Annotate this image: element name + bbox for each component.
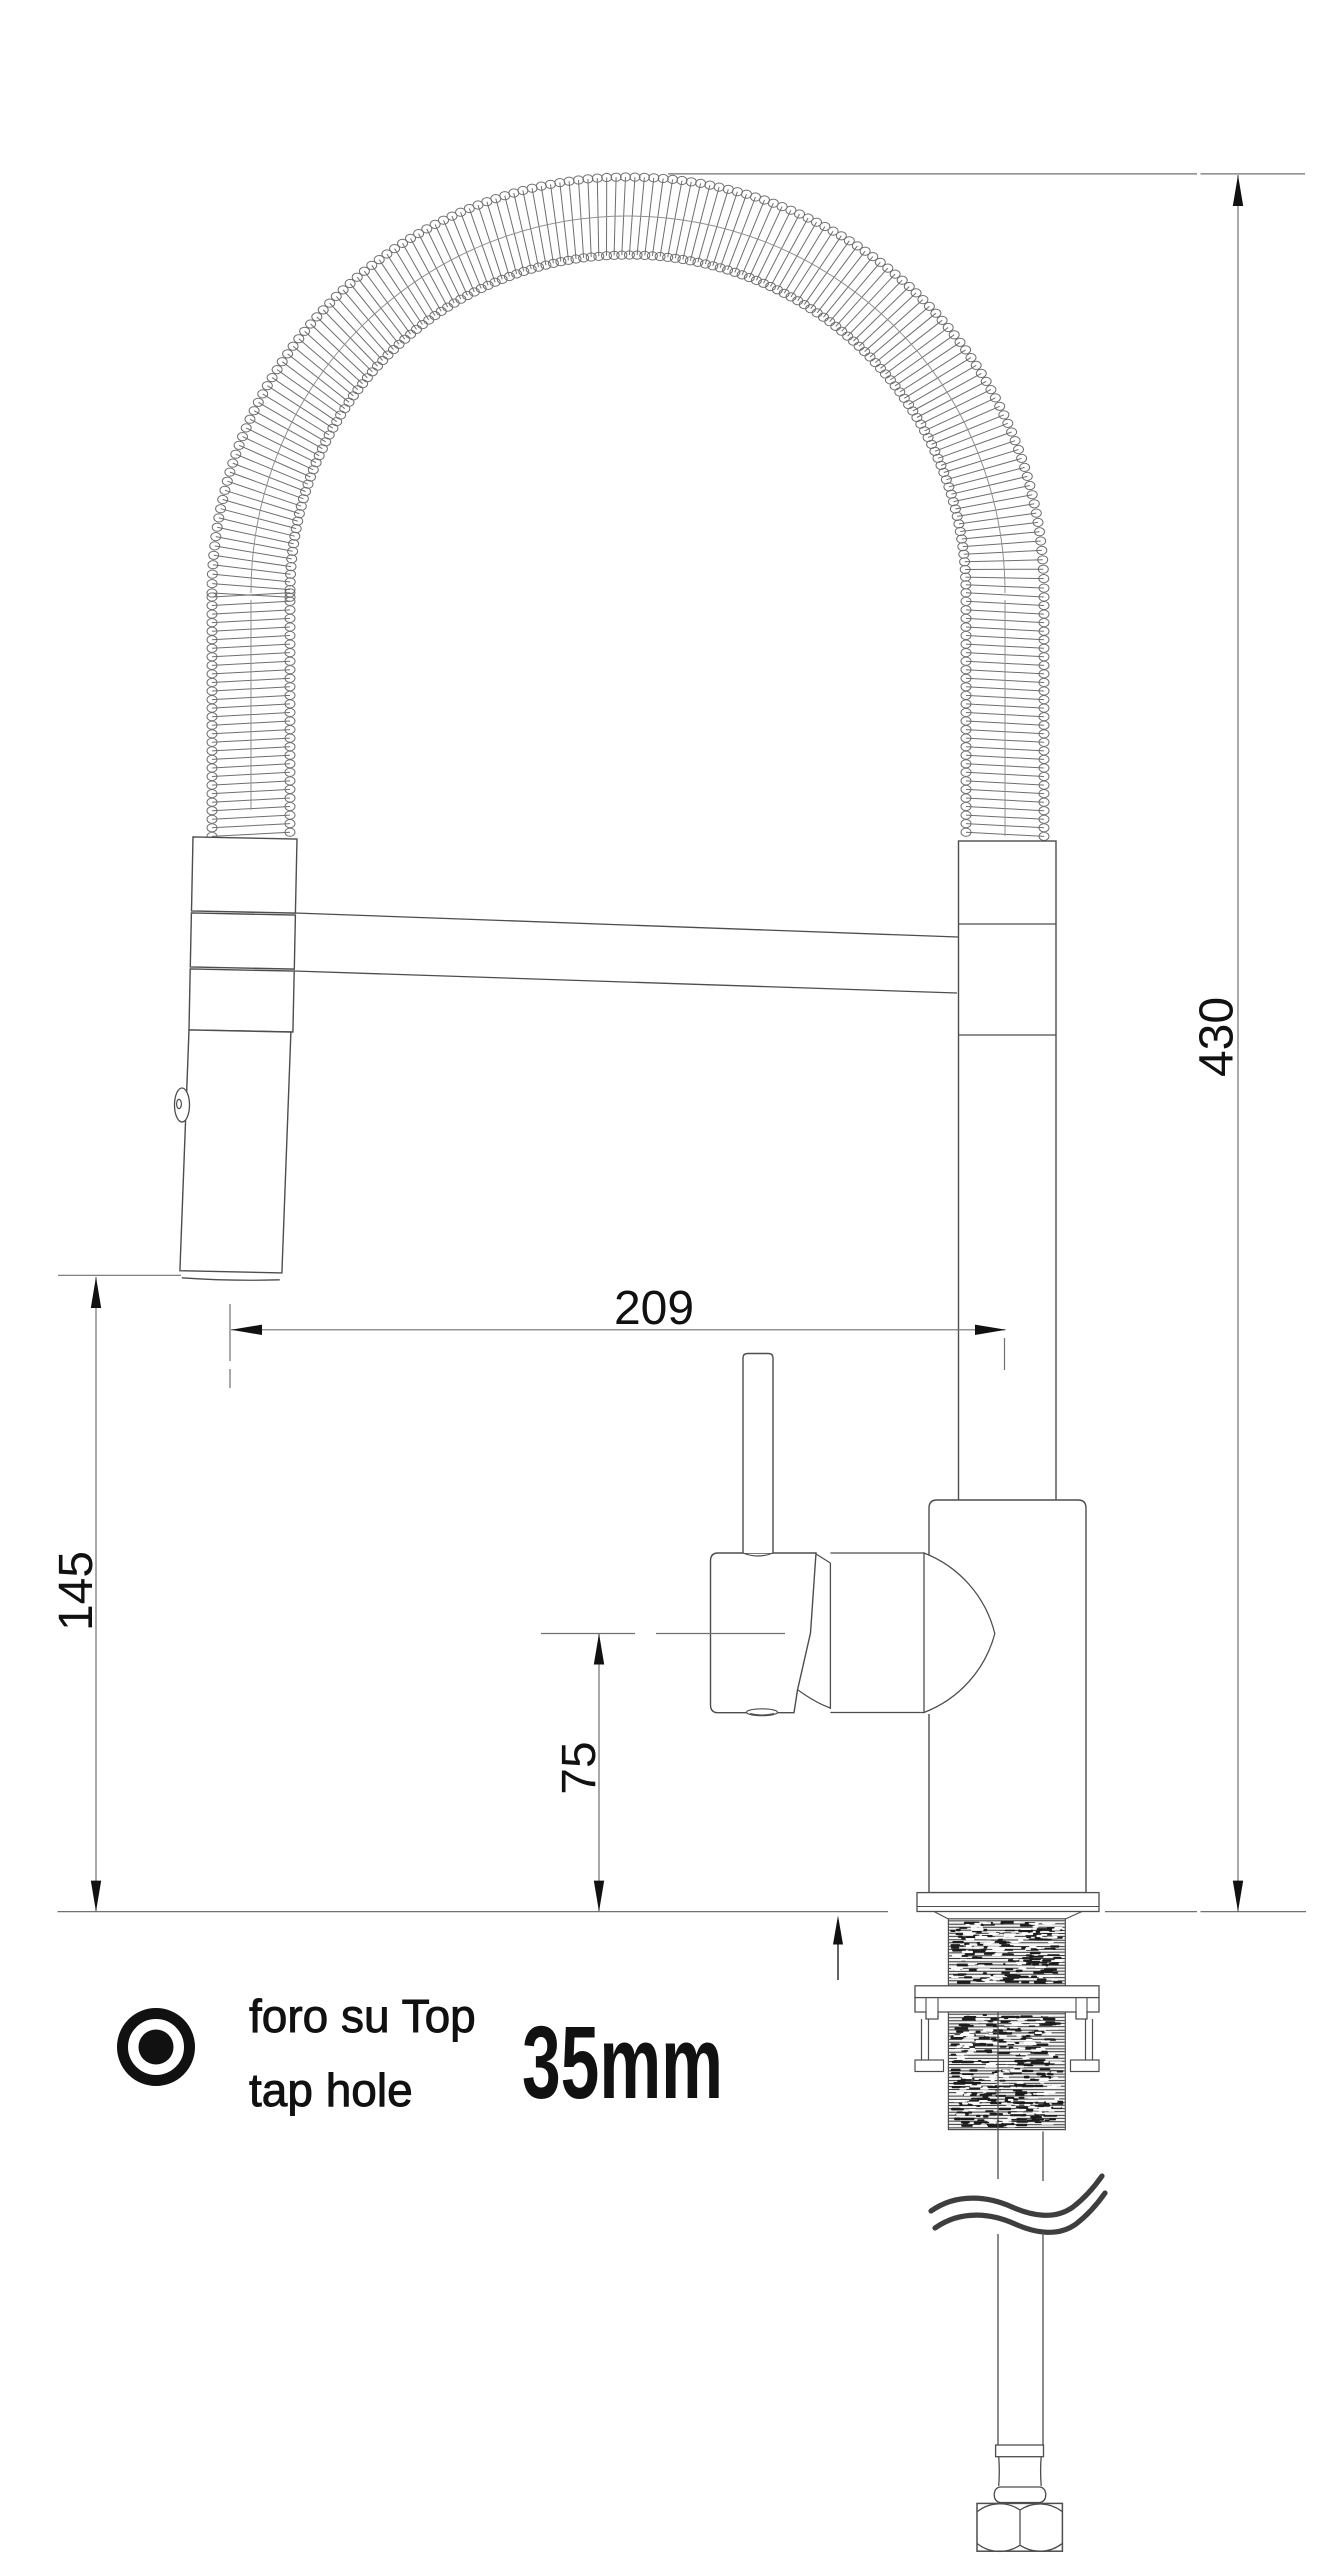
svg-text:145: 145 (50, 1551, 103, 1631)
svg-text:35mm: 35mm (522, 2005, 723, 2120)
svg-text:75: 75 (553, 1741, 606, 1794)
svg-text:foro su Top: foro su Top (249, 1990, 476, 2042)
svg-text:209: 209 (614, 1282, 694, 1335)
svg-text:430: 430 (1191, 997, 1244, 1077)
svg-text:tap hole: tap hole (249, 2064, 413, 2116)
